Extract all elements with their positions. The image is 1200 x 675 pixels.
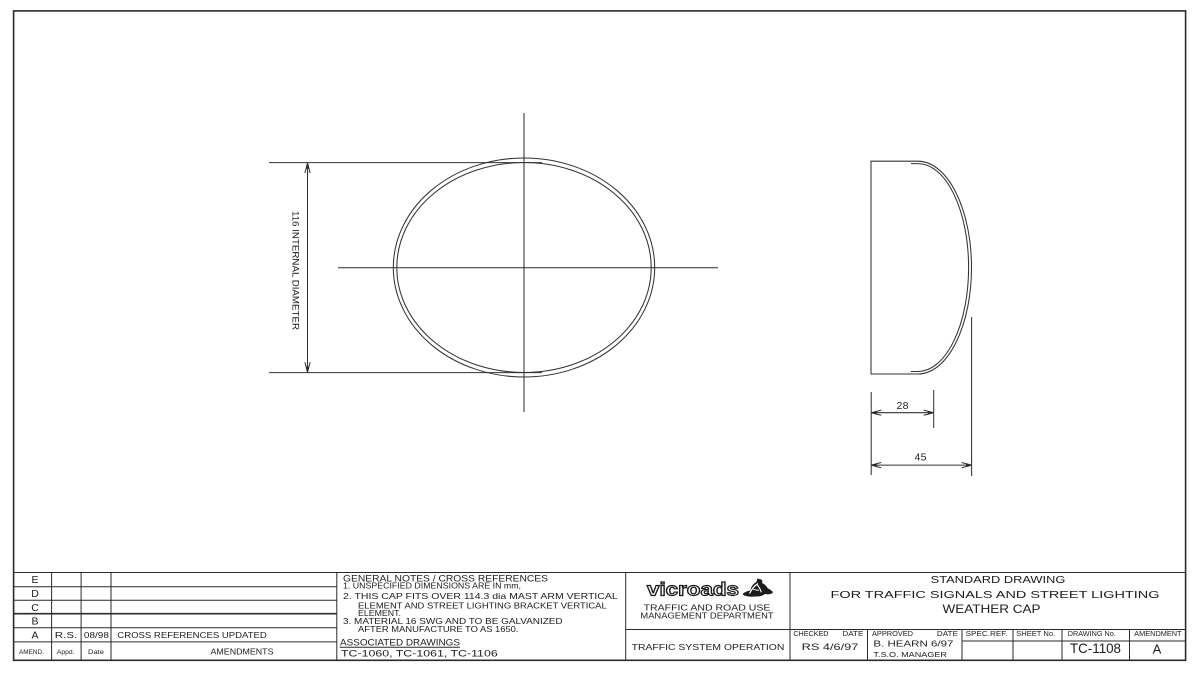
svg-text:AMENDMENT: AMENDMENT <box>1134 631 1182 638</box>
svg-text:1. UNSPECIFIED DIMENSIONS ARE: 1. UNSPECIFIED DIMENSIONS ARE IN mm, <box>343 580 521 590</box>
svg-text:B. HEARN 6/97: B. HEARN 6/97 <box>873 639 953 649</box>
svg-text:TC-1060, TC-1061, TC-1106: TC-1060, TC-1061, TC-1106 <box>341 648 498 658</box>
svg-text:AMENDMENTS: AMENDMENTS <box>211 647 274 657</box>
svg-text:vicroads: vicroads <box>647 580 739 600</box>
svg-text:08/98: 08/98 <box>84 631 110 640</box>
svg-text:STANDARD DRAWING: STANDARD DRAWING <box>931 575 1066 586</box>
svg-text:28: 28 <box>897 400 909 412</box>
svg-text:ASSOCIATED DRAWINGS: ASSOCIATED DRAWINGS <box>340 637 460 647</box>
svg-text:DRAWING No.: DRAWING No. <box>1068 631 1116 638</box>
svg-text:C: C <box>31 602 39 614</box>
svg-text:CROSS REFERENCES UPDATED: CROSS REFERENCES UPDATED <box>117 630 266 640</box>
svg-text:Date: Date <box>88 649 104 656</box>
svg-text:R.S.: R.S. <box>55 631 78 640</box>
svg-text:APPROVED: APPROVED <box>872 631 913 638</box>
svg-text:SPEC.REF.: SPEC.REF. <box>966 631 1008 638</box>
svg-text:FOR TRAFFIC SIGNALS AND STREET: FOR TRAFFIC SIGNALS AND STREET LIGHTING <box>831 590 1160 601</box>
svg-text:T.S.O. MANAGER: T.S.O. MANAGER <box>873 652 947 659</box>
svg-text:SHEET No.: SHEET No. <box>1016 631 1055 638</box>
svg-text:AMEND.: AMEND. <box>19 649 44 656</box>
svg-text:2. THIS CAP FITS OVER 114.3 di: 2. THIS CAP FITS OVER 114.3 dia MAST ARM… <box>343 591 618 601</box>
svg-text:TC-1108: TC-1108 <box>1070 640 1121 656</box>
svg-text:45: 45 <box>915 451 927 463</box>
svg-text:A: A <box>1153 642 1162 657</box>
svg-text:Appd.: Appd. <box>57 649 75 656</box>
svg-text:RS 4/6/97: RS 4/6/97 <box>802 642 859 653</box>
svg-text:DATE: DATE <box>937 631 958 638</box>
svg-text:E: E <box>31 574 38 586</box>
svg-text:WEATHER CAP: WEATHER CAP <box>943 602 1041 616</box>
svg-text:D: D <box>31 588 39 600</box>
svg-text:DATE: DATE <box>842 631 863 638</box>
svg-text:MANAGEMENT DEPARTMENT: MANAGEMENT DEPARTMENT <box>640 612 773 621</box>
svg-text:116 INTERNAL DIAMETER: 116 INTERNAL DIAMETER <box>289 211 300 330</box>
svg-text:B: B <box>31 616 38 628</box>
svg-text:CHECKED: CHECKED <box>793 631 828 638</box>
svg-text:TRAFFIC SYSTEM OPERATION: TRAFFIC SYSTEM OPERATION <box>632 642 785 652</box>
svg-text:AFTER MANUFACTURE TO AS 1650.: AFTER MANUFACTURE TO AS 1650. <box>358 624 519 634</box>
svg-text:A: A <box>31 630 38 642</box>
